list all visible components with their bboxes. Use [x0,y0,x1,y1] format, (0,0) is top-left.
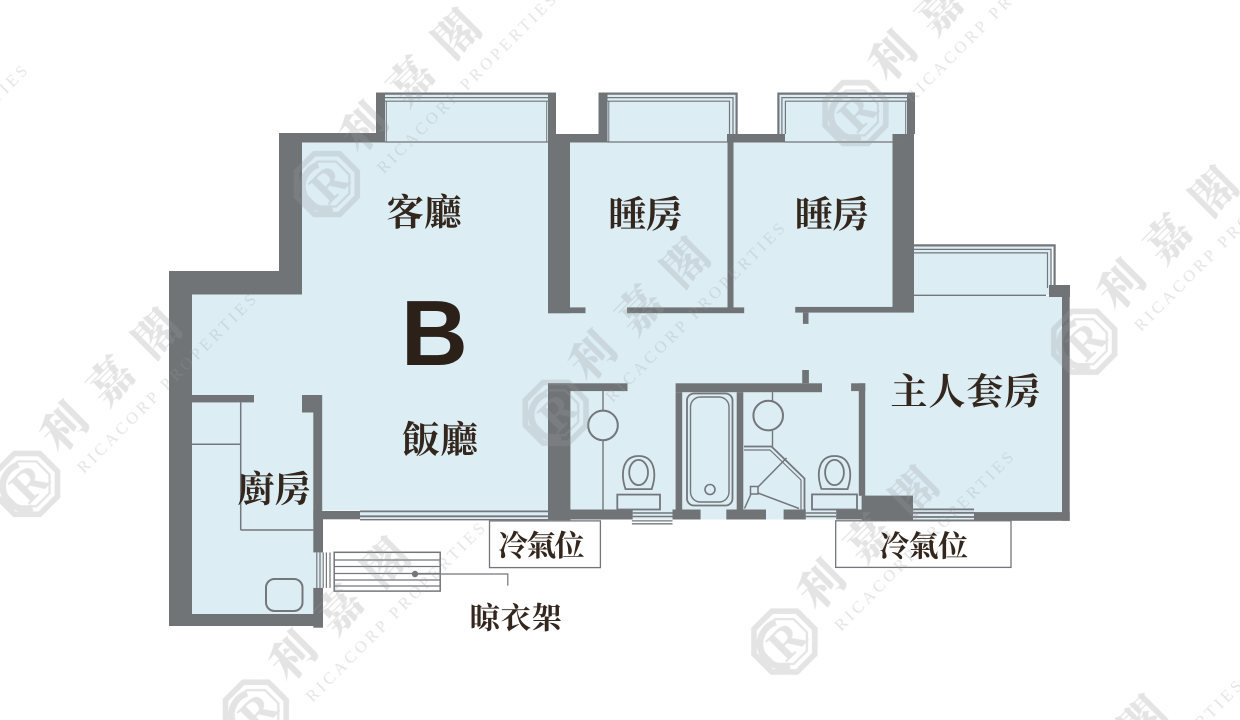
svg-text:B: B [401,281,468,385]
